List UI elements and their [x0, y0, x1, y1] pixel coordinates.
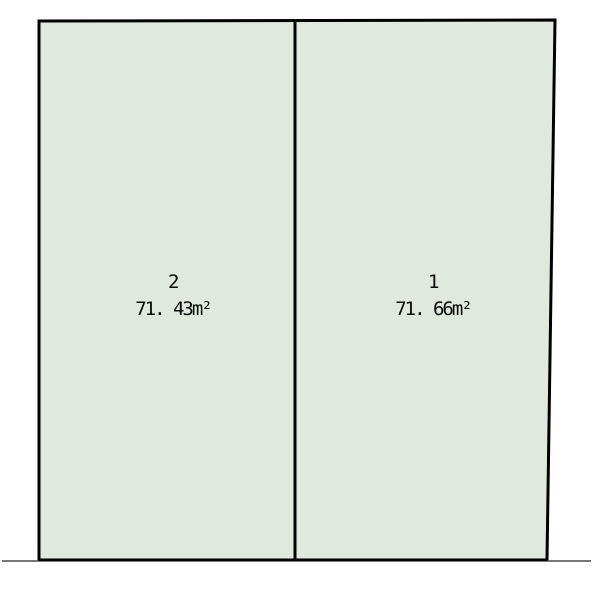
parcel-2-area: 71. 43m² [73, 296, 273, 323]
parcel-1-label: 1 71. 66m² [333, 269, 533, 323]
parcel-1-number: 1 [333, 269, 533, 296]
plot-plan-canvas: 2 71. 43m² 1 71. 66m² [0, 0, 600, 600]
parcel-1-area: 71. 66m² [333, 296, 533, 323]
parcel-2-number: 2 [73, 269, 273, 296]
parcel-2-label: 2 71. 43m² [73, 269, 273, 323]
